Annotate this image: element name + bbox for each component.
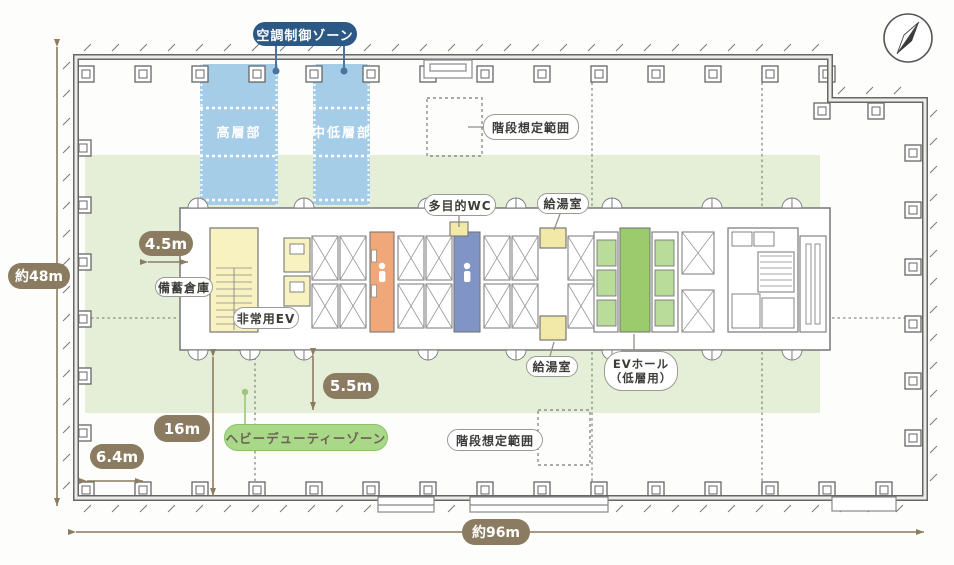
- ev-hall-line1: EVホール: [613, 357, 669, 371]
- hvac-zone-label: 空調制御ゾーン: [253, 22, 357, 46]
- dim-5-5m: 5.5m: [323, 373, 379, 399]
- stair-range-label-top: 階段想定範囲: [483, 114, 579, 140]
- stair-range-box-bottom: [538, 410, 590, 465]
- kitchenette-label-top: 給湯室: [537, 193, 589, 214]
- kitchenette-label-bottom: 給湯室: [526, 356, 578, 377]
- dim-16m: 16m: [154, 415, 210, 442]
- high-rise-band-label: 高層部: [212, 122, 266, 140]
- ev-hall-line2: （低層用）: [610, 371, 673, 385]
- emergency-ev-label: 非常用EV: [233, 307, 299, 329]
- dim-width-96m: 約96m: [462, 519, 530, 545]
- floor-plan-drawing: [0, 0, 954, 565]
- ev-hall-label: EVホール （低層用）: [604, 351, 678, 391]
- heavy-duty-zone-label: ヘビーデューティーゾーン: [224, 424, 388, 451]
- mid-low-rise-band-label: 中低層部: [306, 122, 378, 140]
- multipurpose-wc-label: 多目的WC: [424, 194, 496, 216]
- dim-4-5m: 4.5m: [139, 231, 193, 256]
- dim-depth-48m: 約48m: [8, 263, 70, 289]
- dim-6-4m: 6.4m: [90, 444, 144, 469]
- storage-label: 備蓄倉庫: [155, 277, 213, 297]
- north-arrow-compass-icon: [884, 14, 932, 62]
- stair-range-label-bottom: 階段想定範囲: [447, 429, 543, 451]
- floor-plan-page: 空調制御ゾーン 高層部 中低層部 階段想定範囲 多目的WC 給湯室 給湯室 EV…: [0, 0, 954, 565]
